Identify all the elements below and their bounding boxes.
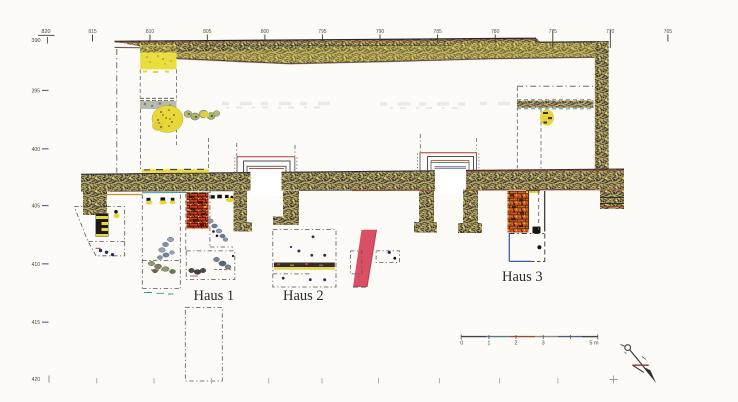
svg-text:415: 415	[32, 320, 41, 326]
svg-text:800: 800	[261, 29, 270, 35]
svg-text:810: 810	[146, 29, 155, 35]
svg-text:790: 790	[376, 29, 385, 35]
svg-text:1: 1	[487, 341, 490, 347]
svg-text:805: 805	[203, 29, 212, 35]
svg-text:795: 795	[318, 29, 327, 35]
svg-text:390: 390	[31, 38, 40, 44]
svg-text:3: 3	[542, 341, 545, 347]
svg-text:405: 405	[32, 204, 41, 210]
svg-text:5 m: 5 m	[589, 341, 599, 347]
svg-text:410: 410	[32, 262, 41, 268]
svg-text:780: 780	[491, 29, 500, 35]
svg-text:2: 2	[514, 341, 517, 347]
svg-text:400: 400	[32, 147, 41, 153]
svg-text:765: 765	[664, 29, 673, 35]
svg-text:Haus 2: Haus 2	[283, 288, 324, 304]
svg-text:820: 820	[41, 29, 50, 35]
svg-text:Haus 3: Haus 3	[502, 269, 543, 285]
svg-text:0: 0	[460, 341, 463, 347]
svg-text:785: 785	[433, 29, 442, 35]
svg-text:Haus 1: Haus 1	[194, 288, 235, 304]
svg-text:815: 815	[88, 29, 97, 35]
svg-text:420: 420	[32, 377, 41, 383]
svg-text:395: 395	[32, 88, 41, 94]
